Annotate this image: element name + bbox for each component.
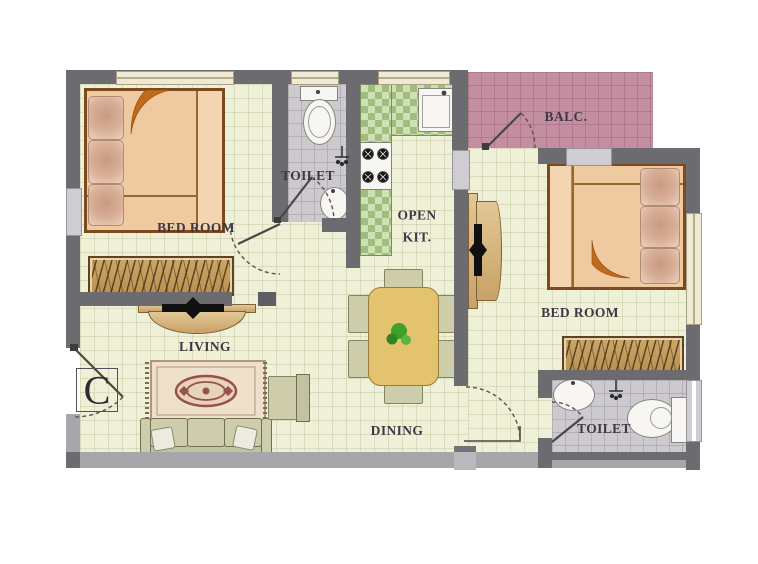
label-bedroom-left: BED ROOM — [157, 220, 235, 236]
wc-bowl — [308, 106, 331, 138]
label-kitchen: OPEN KIT. — [397, 204, 436, 247]
wall-bedroom-left-bottom — [80, 292, 232, 306]
wall-dining-bedroom — [454, 188, 468, 386]
wardrobe-icon — [88, 256, 234, 296]
window-icon — [452, 150, 470, 190]
window-icon — [291, 71, 339, 85]
window-icon — [566, 148, 612, 166]
dining-chair-icon — [436, 340, 456, 378]
window-icon — [116, 71, 234, 85]
sofa-pillow — [232, 425, 258, 451]
kitchen-sink-icon — [418, 88, 454, 132]
wc-bowl — [650, 407, 672, 429]
sofa-pillow — [150, 426, 175, 451]
wall-balcony-left — [452, 70, 468, 150]
pillow-icon — [640, 168, 680, 206]
rug-fringe — [145, 362, 149, 420]
stove-icon — [360, 142, 392, 190]
wall-toilet-bottom-top — [538, 370, 686, 380]
pillow-icon — [88, 96, 124, 140]
dining-table-icon — [368, 287, 439, 386]
sofa-cushion — [187, 418, 225, 447]
dining-chair-icon — [436, 295, 456, 333]
unit-label: C — [84, 367, 111, 414]
label-kitchen-line2: KIT. — [403, 229, 432, 244]
label-kitchen-line1: OPEN — [397, 207, 436, 222]
pillar-dining — [454, 446, 476, 470]
pillow-icon — [640, 206, 680, 248]
window-icon — [378, 71, 450, 85]
rug-icon — [150, 360, 266, 426]
wall-toilet-top-bottom — [322, 218, 360, 232]
wall-pillar-bedroom-left — [258, 292, 276, 306]
wall-toilet-top-left — [272, 84, 288, 222]
rug-fringe — [263, 362, 267, 420]
window-icon — [686, 213, 702, 325]
dining-chair-icon — [384, 383, 423, 404]
wall-bottom-corner — [66, 452, 80, 468]
label-toilet-bottom: TOILET — [577, 421, 631, 437]
bed-sheet — [196, 91, 222, 230]
window-icon — [686, 380, 702, 442]
wardrobe-icon — [562, 336, 684, 374]
washbasin-icon — [553, 379, 595, 411]
label-bedroom-right: BED ROOM — [541, 305, 619, 321]
armchair-back — [296, 374, 310, 422]
label-balcony: BALC. — [545, 109, 588, 125]
wall-toilet-bottom-base — [538, 452, 700, 460]
window-icon — [66, 188, 82, 236]
sink-basin — [422, 95, 450, 128]
pillow-icon — [640, 248, 680, 284]
wall-bedroom-right-top — [538, 148, 686, 164]
label-toilet-top: TOILET — [281, 168, 335, 184]
label-living: LIVING — [179, 339, 231, 355]
sofa-icon — [140, 418, 270, 456]
pillow-icon — [88, 140, 124, 184]
wall-kitchen-stub — [346, 232, 360, 268]
pillow-icon — [88, 184, 124, 226]
tv-unit-icon — [476, 201, 502, 301]
wall-toilet-top-right — [346, 84, 360, 232]
wall-toilet-bottom-left-upper — [538, 370, 552, 398]
bed-sheet — [550, 166, 574, 287]
label-dining: DINING — [371, 423, 424, 439]
washbasin-icon — [320, 187, 349, 220]
floor-plan: C BED ROOM TOILET OPEN KIT. BALC. BED RO… — [0, 0, 758, 564]
